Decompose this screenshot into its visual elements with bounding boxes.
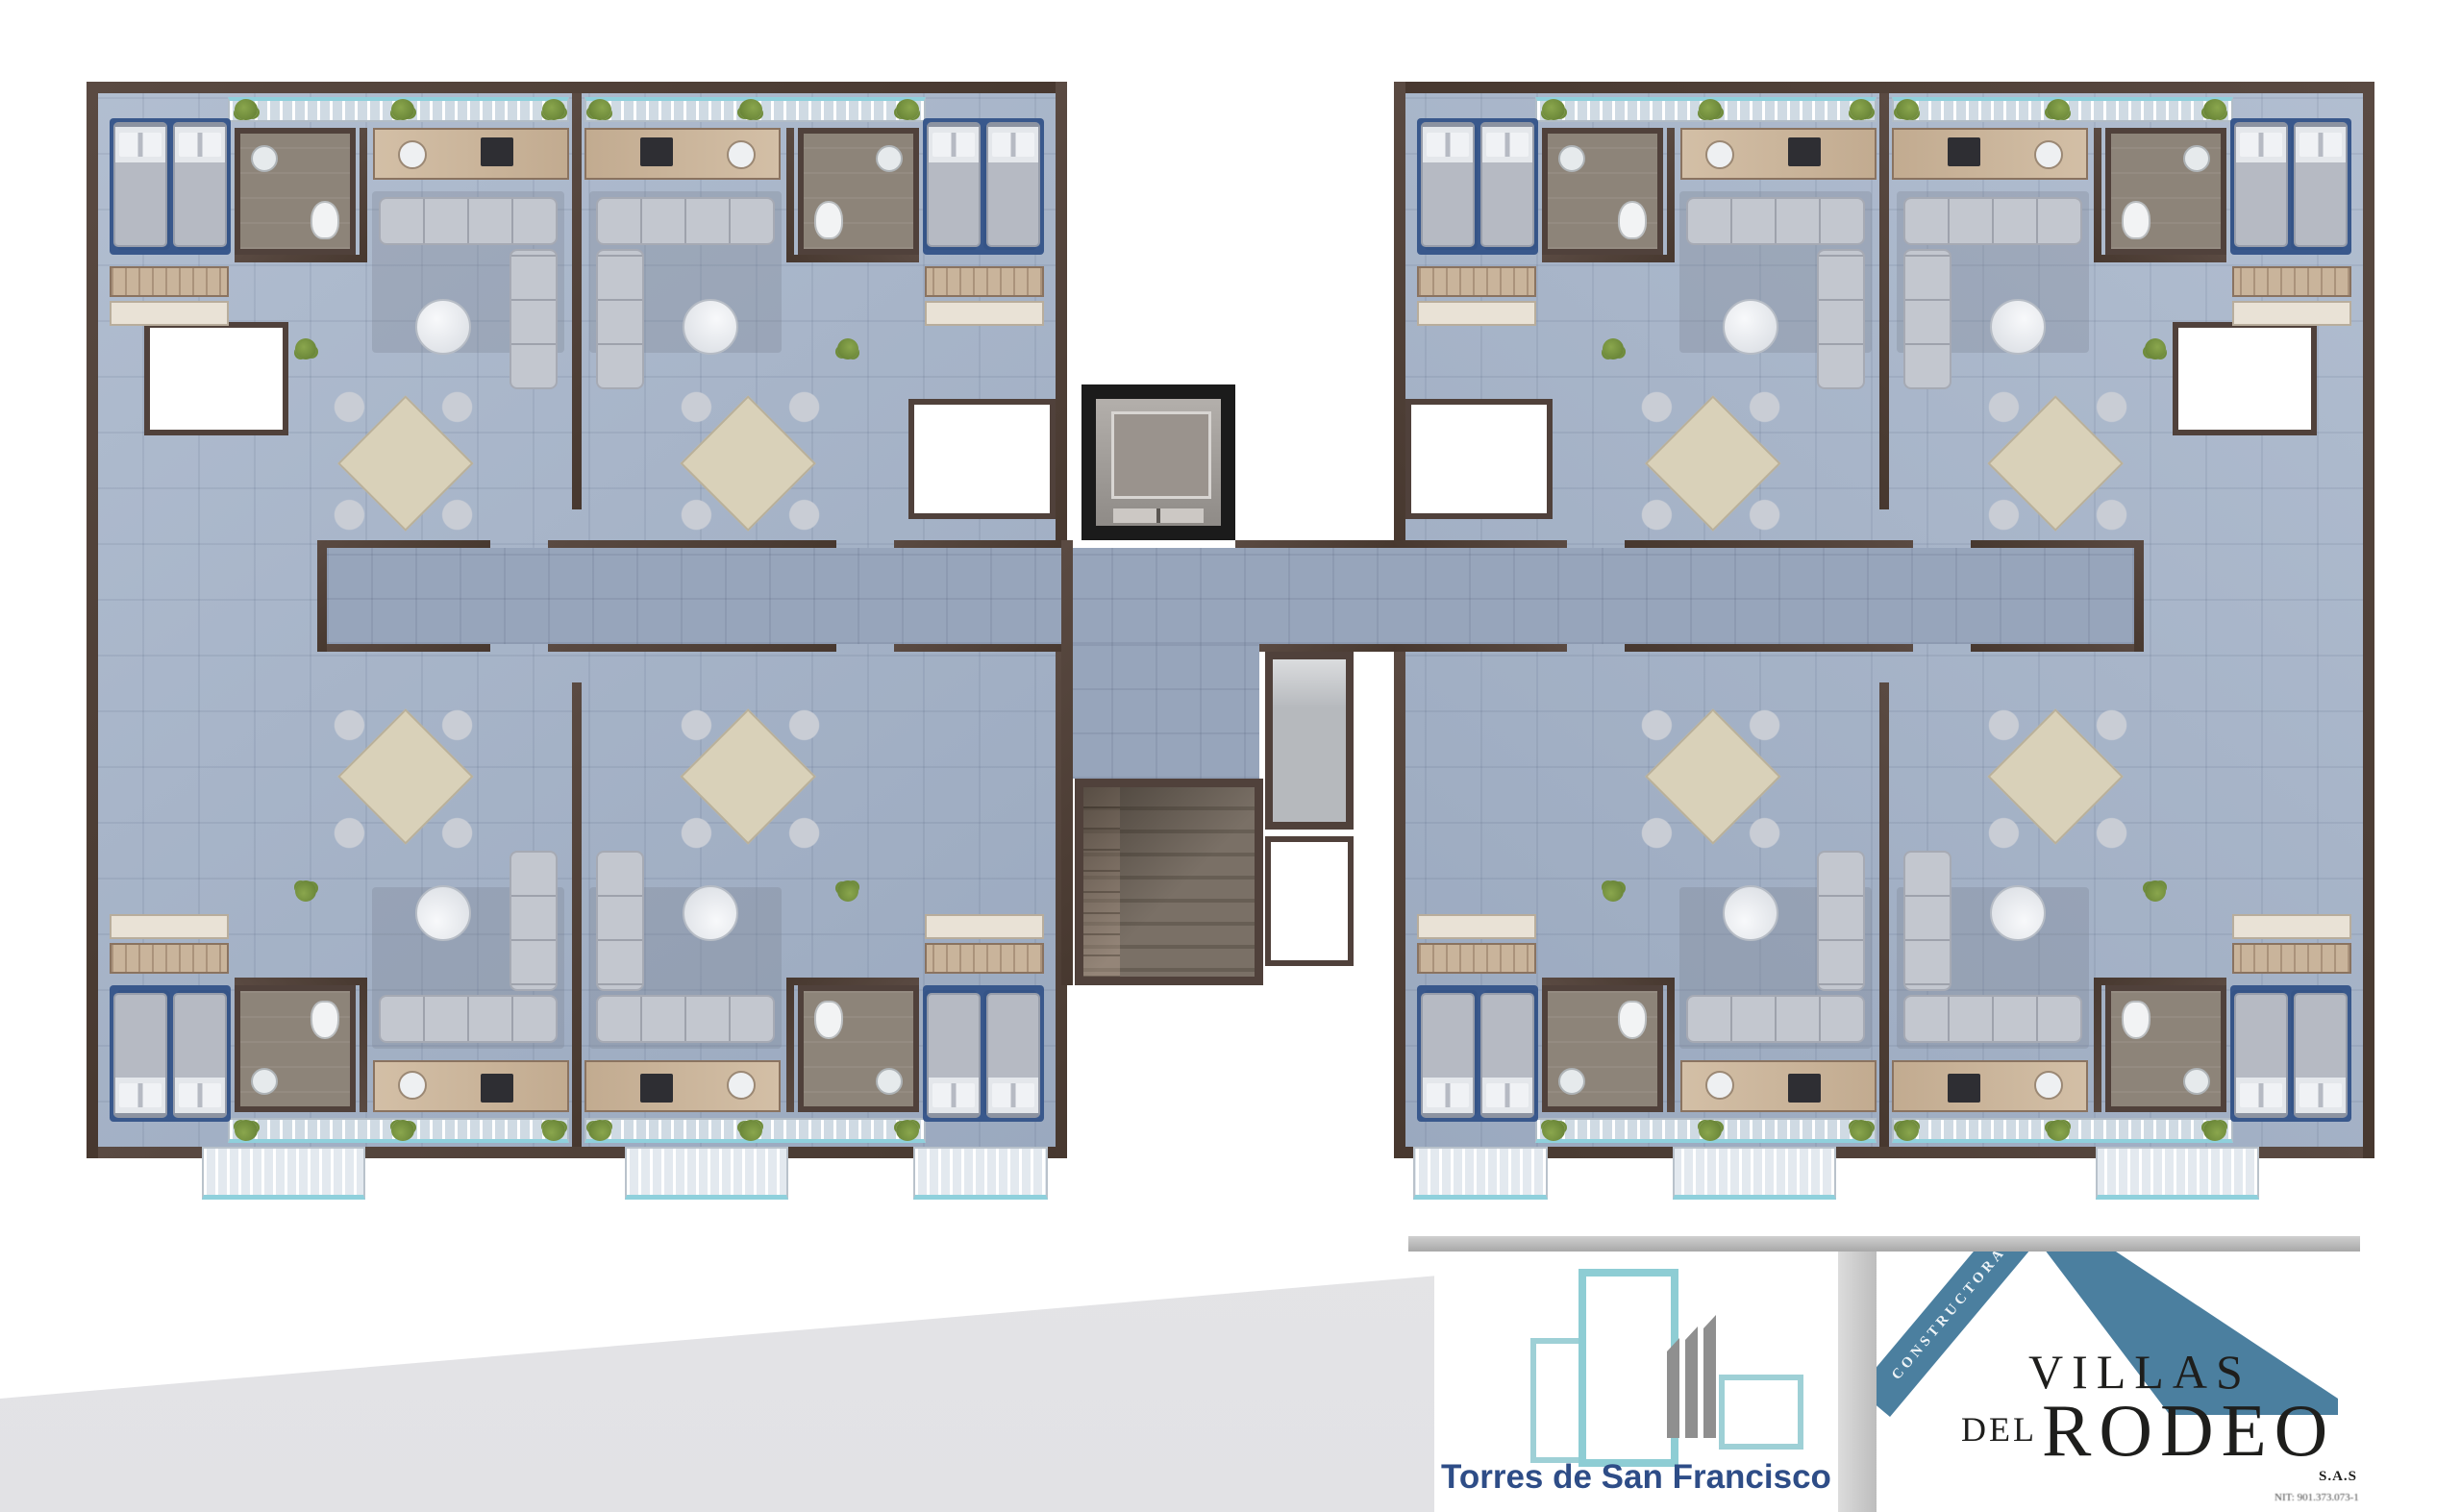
logo-divider bbox=[1838, 1252, 1877, 1512]
bath-wall-bottom bbox=[2094, 255, 2226, 262]
bath-wall-bottom bbox=[1542, 255, 1675, 262]
building-tall bbox=[1579, 1269, 1678, 1467]
twin-bed-2 bbox=[927, 122, 981, 247]
sofa-vertical bbox=[1903, 249, 1951, 389]
bathroom bbox=[235, 128, 356, 255]
wardrobe bbox=[925, 266, 1044, 297]
bathroom bbox=[798, 985, 919, 1112]
apartment-bottom-right bbox=[1405, 697, 1884, 1147]
kitchen-counter bbox=[1892, 128, 2088, 180]
twin-bed-2 bbox=[173, 122, 227, 247]
villas-logo-box: CONSTRUCTORA VILLAS DEL RODEO S.A.S NIT:… bbox=[1877, 1252, 2374, 1512]
sofa-vertical bbox=[1903, 851, 1951, 991]
kitchen-counter bbox=[373, 1060, 569, 1112]
outer-wall-top bbox=[87, 82, 1067, 93]
balcony-plant-1 bbox=[896, 99, 919, 120]
dining-set bbox=[324, 700, 483, 858]
balcony-tab-3 bbox=[913, 1147, 1048, 1200]
desk bbox=[2232, 914, 2351, 939]
bath-wall-bottom bbox=[235, 255, 367, 262]
inner-wall-right-upper bbox=[1394, 82, 1405, 548]
corridor-wall-bottom-1 bbox=[1971, 644, 2144, 652]
wing-corridor bbox=[327, 548, 1067, 644]
bath-wall-right bbox=[2094, 128, 2101, 262]
hall-plant bbox=[2145, 338, 2166, 359]
sofa-horizontal bbox=[1903, 197, 2082, 245]
twin-bed-1 bbox=[2294, 993, 2348, 1118]
hall-plant bbox=[1603, 338, 1624, 359]
bath-wall-bottom bbox=[235, 978, 367, 985]
side-table-round bbox=[1723, 299, 1778, 355]
twin-bed-1 bbox=[986, 993, 1040, 1118]
desk bbox=[925, 301, 1044, 326]
wing-corridor bbox=[1394, 548, 2134, 644]
bathroom bbox=[1542, 985, 1663, 1112]
sofa-horizontal bbox=[1686, 995, 1865, 1043]
bath-wall-bottom bbox=[2094, 978, 2226, 985]
core-wall-left bbox=[1061, 540, 1073, 985]
desk bbox=[2232, 301, 2351, 326]
balcony-plant-2 bbox=[739, 1120, 762, 1141]
sofa-vertical bbox=[510, 249, 558, 389]
apartment-bottom-left bbox=[98, 697, 577, 1147]
desk bbox=[110, 914, 229, 939]
side-table-round bbox=[415, 299, 471, 355]
wardrobe bbox=[2232, 943, 2351, 974]
balcony-plant-3 bbox=[542, 1120, 565, 1141]
balcony-plant-1 bbox=[235, 99, 258, 120]
corridor-end-wall bbox=[2134, 540, 2144, 652]
corridor-wall-bottom-3 bbox=[894, 644, 1067, 652]
bath-wall-right bbox=[2094, 978, 2101, 1112]
balcony-plant-2 bbox=[391, 1120, 414, 1141]
balcony-plant-3 bbox=[588, 99, 611, 120]
desk bbox=[110, 301, 229, 326]
apartment-top-right bbox=[577, 93, 1056, 543]
sofa-vertical bbox=[596, 851, 644, 991]
twin-bed-1 bbox=[1421, 122, 1475, 247]
dining-set bbox=[671, 382, 830, 540]
apartment-bottom-left bbox=[1884, 697, 2363, 1147]
side-table-round bbox=[1990, 299, 2046, 355]
balcony-plant-1 bbox=[2203, 1120, 2226, 1141]
balcony-plant-2 bbox=[1699, 99, 1722, 120]
kitchen-counter bbox=[584, 1060, 781, 1112]
twin-bed-1 bbox=[986, 122, 1040, 247]
balcony-tab-3 bbox=[1413, 1147, 1548, 1200]
logo-top-strip bbox=[1408, 1236, 2360, 1252]
del-word: DEL bbox=[1961, 1409, 2037, 1450]
inner-wall-right-lower bbox=[1394, 644, 1405, 1158]
bathroom bbox=[798, 128, 919, 255]
balcony-plant-3 bbox=[1850, 99, 1873, 120]
outer-wall-top bbox=[1394, 82, 2374, 93]
kitchen-counter bbox=[373, 128, 569, 180]
page: Torres de San Francisco CONSTRUCTORA VIL… bbox=[0, 0, 2461, 1512]
desk bbox=[925, 914, 1044, 939]
balcony-plant-2 bbox=[2047, 1120, 2070, 1141]
dining-set bbox=[1631, 700, 1790, 858]
desk bbox=[1417, 301, 1536, 326]
sofa-horizontal bbox=[1686, 197, 1865, 245]
wardrobe bbox=[1417, 266, 1536, 297]
wardrobe bbox=[110, 943, 229, 974]
balcony-plant-1 bbox=[2203, 99, 2226, 120]
building-bar-3 bbox=[1703, 1315, 1716, 1438]
balcony-tab-1 bbox=[202, 1147, 365, 1200]
hall-plant bbox=[2145, 880, 2166, 902]
twin-bed-2 bbox=[173, 993, 227, 1118]
twin-bed-2 bbox=[2234, 993, 2288, 1118]
sofa-horizontal bbox=[596, 197, 775, 245]
building-right bbox=[1719, 1375, 1803, 1450]
sofa-vertical bbox=[1817, 249, 1865, 389]
sofa-vertical bbox=[510, 851, 558, 991]
twin-bed-2 bbox=[927, 993, 981, 1118]
wardrobe bbox=[2232, 266, 2351, 297]
hall-plant bbox=[837, 880, 858, 902]
twin-bed-2 bbox=[1480, 122, 1534, 247]
bath-wall-bottom bbox=[786, 255, 919, 262]
nit-number: NIT: 901.373.073-1 bbox=[2275, 1492, 2359, 1503]
bathroom bbox=[2105, 985, 2226, 1112]
hall-plant bbox=[295, 880, 316, 902]
inner-wall-right-upper bbox=[1056, 82, 1067, 548]
bathroom bbox=[1542, 128, 1663, 255]
balcony-plant-3 bbox=[1896, 1120, 1919, 1141]
core-wall-top-right bbox=[1235, 540, 1394, 548]
outer-wall-left bbox=[87, 82, 98, 1158]
core-hall bbox=[1067, 644, 1259, 779]
wardrobe bbox=[110, 266, 229, 297]
hall-plant bbox=[295, 338, 316, 359]
dining-set bbox=[1978, 700, 2137, 858]
bath-wall-right bbox=[786, 978, 794, 1112]
corridor-wall-bottom-2 bbox=[548, 644, 836, 652]
apartment-top-left bbox=[1884, 93, 2363, 543]
bath-wall-right bbox=[1667, 978, 1675, 1112]
corridor-wall-bottom-1 bbox=[317, 644, 490, 652]
dining-set bbox=[1631, 382, 1790, 540]
balcony-tab-2 bbox=[1673, 1147, 1836, 1200]
balcony-plant-3 bbox=[588, 1120, 611, 1141]
twin-bed-2 bbox=[2234, 122, 2288, 247]
corridor-wall-bottom-3 bbox=[1394, 644, 1567, 652]
side-table-round bbox=[1723, 885, 1778, 941]
torres-logo-box: Torres de San Francisco bbox=[1434, 1252, 1838, 1512]
elevator-shaft bbox=[1081, 384, 1235, 540]
kitchen-counter bbox=[1680, 128, 1877, 180]
corridor-wall-bottom-2 bbox=[1625, 644, 1913, 652]
balcony-plant-2 bbox=[739, 99, 762, 120]
apartment-top-right bbox=[1405, 93, 1884, 543]
balcony-plant-3 bbox=[542, 99, 565, 120]
kitchen-counter bbox=[584, 128, 781, 180]
left-wing bbox=[87, 82, 1067, 1158]
building-bar-1 bbox=[1667, 1338, 1679, 1438]
outer-wall-left bbox=[2363, 82, 2374, 1158]
side-table-round bbox=[683, 299, 738, 355]
kitchen-counter bbox=[1680, 1060, 1877, 1112]
balcony-plant-3 bbox=[1896, 99, 1919, 120]
hall-plant bbox=[1603, 880, 1624, 902]
sas-suffix: S.A.S bbox=[2319, 1469, 2357, 1485]
building-bar-2 bbox=[1685, 1326, 1698, 1438]
wardrobe bbox=[1417, 943, 1536, 974]
side-table-round bbox=[415, 885, 471, 941]
balcony-plant-2 bbox=[1699, 1120, 1722, 1141]
twin-bed-1 bbox=[1421, 993, 1475, 1118]
side-table-round bbox=[1990, 885, 2046, 941]
constructora-label: CONSTRUCTORA bbox=[1889, 1252, 2010, 1383]
twin-bed-1 bbox=[2294, 122, 2348, 247]
balcony-plant-2 bbox=[391, 99, 414, 120]
bath-wall-right bbox=[360, 128, 367, 262]
balcony-plant-1 bbox=[896, 1120, 919, 1141]
sofa-horizontal bbox=[379, 995, 558, 1043]
lobby-room bbox=[1265, 652, 1354, 830]
bath-wall-right bbox=[1667, 128, 1675, 262]
dining-set bbox=[671, 700, 830, 858]
balcony-plant-1 bbox=[1542, 99, 1565, 120]
right-wing bbox=[1394, 82, 2374, 1158]
twin-bed-1 bbox=[113, 122, 167, 247]
sofa-horizontal bbox=[379, 197, 558, 245]
balcony-plant-2 bbox=[2047, 99, 2070, 120]
dining-set bbox=[1978, 382, 2137, 540]
sofa-horizontal bbox=[596, 995, 775, 1043]
rodeo-word: RODEO bbox=[2042, 1388, 2335, 1474]
twin-bed-1 bbox=[113, 993, 167, 1118]
hall-plant bbox=[837, 338, 858, 359]
balcony-plant-1 bbox=[1542, 1120, 1565, 1141]
core-wall-bottom-right bbox=[1259, 644, 1394, 652]
desk bbox=[1417, 914, 1536, 939]
balcony-plant-1 bbox=[235, 1120, 258, 1141]
bath-wall-right bbox=[360, 978, 367, 1112]
core-corridor bbox=[1067, 548, 1394, 644]
bath-wall-bottom bbox=[1542, 978, 1675, 985]
bath-wall-bottom bbox=[786, 978, 919, 985]
kitchen-counter bbox=[1892, 1060, 2088, 1112]
sofa-vertical bbox=[1817, 851, 1865, 991]
side-table-round bbox=[683, 885, 738, 941]
torres-logo-title: Torres de San Francisco bbox=[1434, 1458, 1838, 1497]
bathroom bbox=[235, 985, 356, 1112]
apartment-bottom-right bbox=[577, 697, 1056, 1147]
twin-bed-2 bbox=[1480, 993, 1534, 1118]
staircase bbox=[1075, 779, 1263, 985]
balcony-tab-1 bbox=[2096, 1147, 2259, 1200]
villas-roof-icon: CONSTRUCTORA VILLAS DEL RODEO S.A.S NIT:… bbox=[1877, 1252, 2374, 1512]
balcony-tab-2 bbox=[625, 1147, 788, 1200]
dining-set bbox=[324, 382, 483, 540]
lobby-void bbox=[1265, 836, 1354, 966]
apartment-top-left bbox=[98, 93, 577, 543]
sofa-horizontal bbox=[1903, 995, 2082, 1043]
balcony-plant-3 bbox=[1850, 1120, 1873, 1141]
bathroom bbox=[2105, 128, 2226, 255]
corridor-end-wall bbox=[317, 540, 327, 652]
sofa-vertical bbox=[596, 249, 644, 389]
wardrobe bbox=[925, 943, 1044, 974]
constructora-ribbon: CONSTRUCTORA bbox=[1877, 1252, 2041, 1417]
bath-wall-right bbox=[786, 128, 794, 262]
